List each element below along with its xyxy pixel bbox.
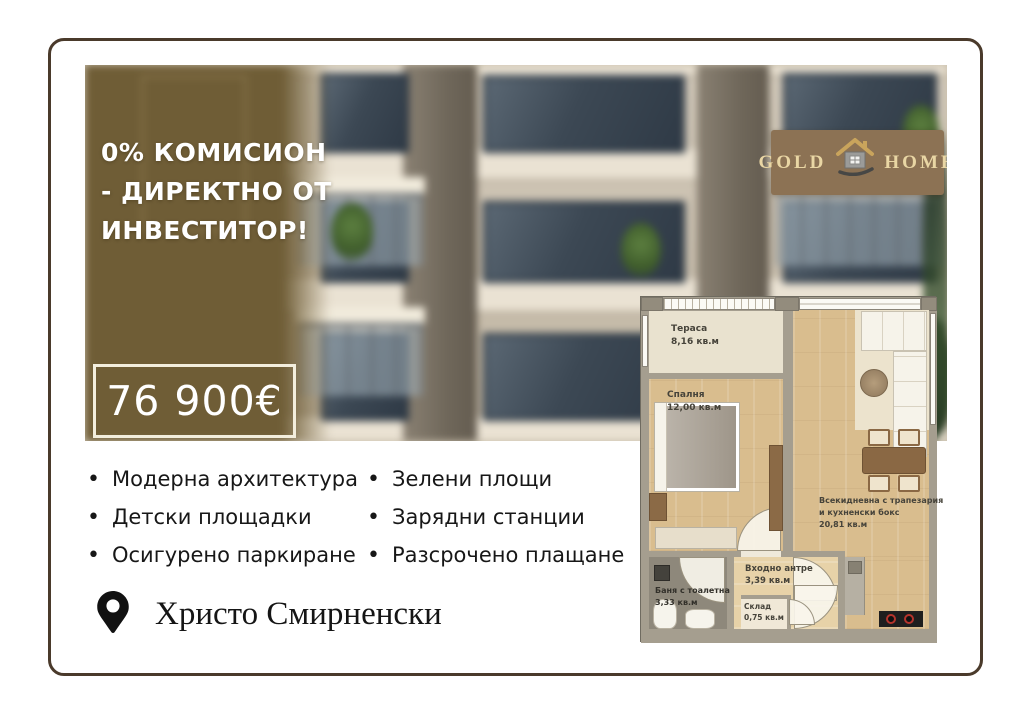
plan-window [930,313,936,425]
label-bedroom: Спалня 12,00 кв.м [667,389,721,415]
logo-word-home: HOME [884,152,947,174]
chair [898,475,920,492]
feature-column-2: Зелени площи Зарядни станции Разсрочено … [367,467,624,581]
feature-item: Зелени площи [367,467,624,492]
plan-wall [783,297,793,557]
room-name: Баня с тоалетна [655,585,730,597]
house-icon [832,134,878,180]
dining-table [862,447,926,474]
kitchen-sink [848,561,862,574]
promo-line: ИНВЕСТИТОР! [101,211,351,250]
map-pin-icon [97,591,129,637]
location-name: Христо Смирненски [155,596,442,633]
label-hall: Входно антре 3,39 кв.м [745,563,813,588]
wall-block [641,297,663,311]
feature-column-1: Модерна архитектура Детски площадки Осиг… [87,467,367,581]
chair [868,475,890,492]
location-row: Христо Смирненски [97,591,442,637]
gold-home-logo: GOLD HOME [771,130,944,195]
plan-window [642,315,648,367]
flyer-card: 0% КОМИСИОН - ДИРЕКТНО ОТ ИНВЕСТИТОР! 76… [48,38,983,676]
chair [898,429,920,446]
room-name: Тераса [671,323,719,336]
room-name: Спалня [667,389,721,402]
label-living: Всекидневна с трапезария и кухненски бок… [819,495,943,531]
label-bathroom: Баня с тоалетна 3,33 кв.м [655,585,730,608]
round-rug [860,369,888,397]
balcony-railing [777,193,945,266]
feature-item: Детски площадки [87,505,367,530]
sofa-top [861,311,927,351]
promo-line: - ДИРЕКТНО ОТ [101,172,351,211]
room-name: Всекидневна с трапезария [819,495,943,507]
balcony-plant [621,223,661,277]
logo-word-gold: GOLD [758,152,826,174]
price-value: 76 900€ [106,377,283,425]
feature-list: Модерна архитектура Детски площадки Осиг… [87,467,697,581]
promo-headline: 0% КОМИСИОН - ДИРЕКТНО ОТ ИНВЕСТИТОР! [101,133,351,250]
room-area: 12,00 кв.м [667,402,721,415]
chair [868,429,890,446]
room-area: 0,75 кв.м [744,613,784,624]
plan-window [799,298,921,310]
plan-wall [838,557,845,629]
wardrobe [769,445,783,531]
room-area: 3,33 кв.м [655,597,730,609]
room-area: 20,81 кв.м [819,519,943,531]
feature-item: Зарядни станции [367,505,624,530]
stove-burner [904,614,914,624]
wall-block [775,297,799,311]
feature-item: Осигурено паркиране [87,543,367,568]
promo-line: 0% КОМИСИОН [101,133,351,172]
room-area: 3,39 кв.м [745,575,813,587]
window [483,75,685,153]
sink [685,609,715,629]
price-box: 76 900€ [93,364,296,438]
wall-block [921,297,937,311]
plan-wall [641,629,937,643]
room-name: и кухненски бокс [819,507,943,519]
feature-item: Разсрочено плащане [367,543,624,568]
terrace-railing [663,298,775,310]
stove-burner [886,614,896,624]
label-terrace: Тераса 8,16 кв.м [671,323,719,349]
room-name: Склад [744,602,784,613]
label-storage: Склад 0,75 кв.м [744,602,784,624]
room-name: Входно антре [745,563,813,575]
room-area: 8,16 кв.м [671,336,719,349]
feature-item: Модерна архитектура [87,467,367,492]
